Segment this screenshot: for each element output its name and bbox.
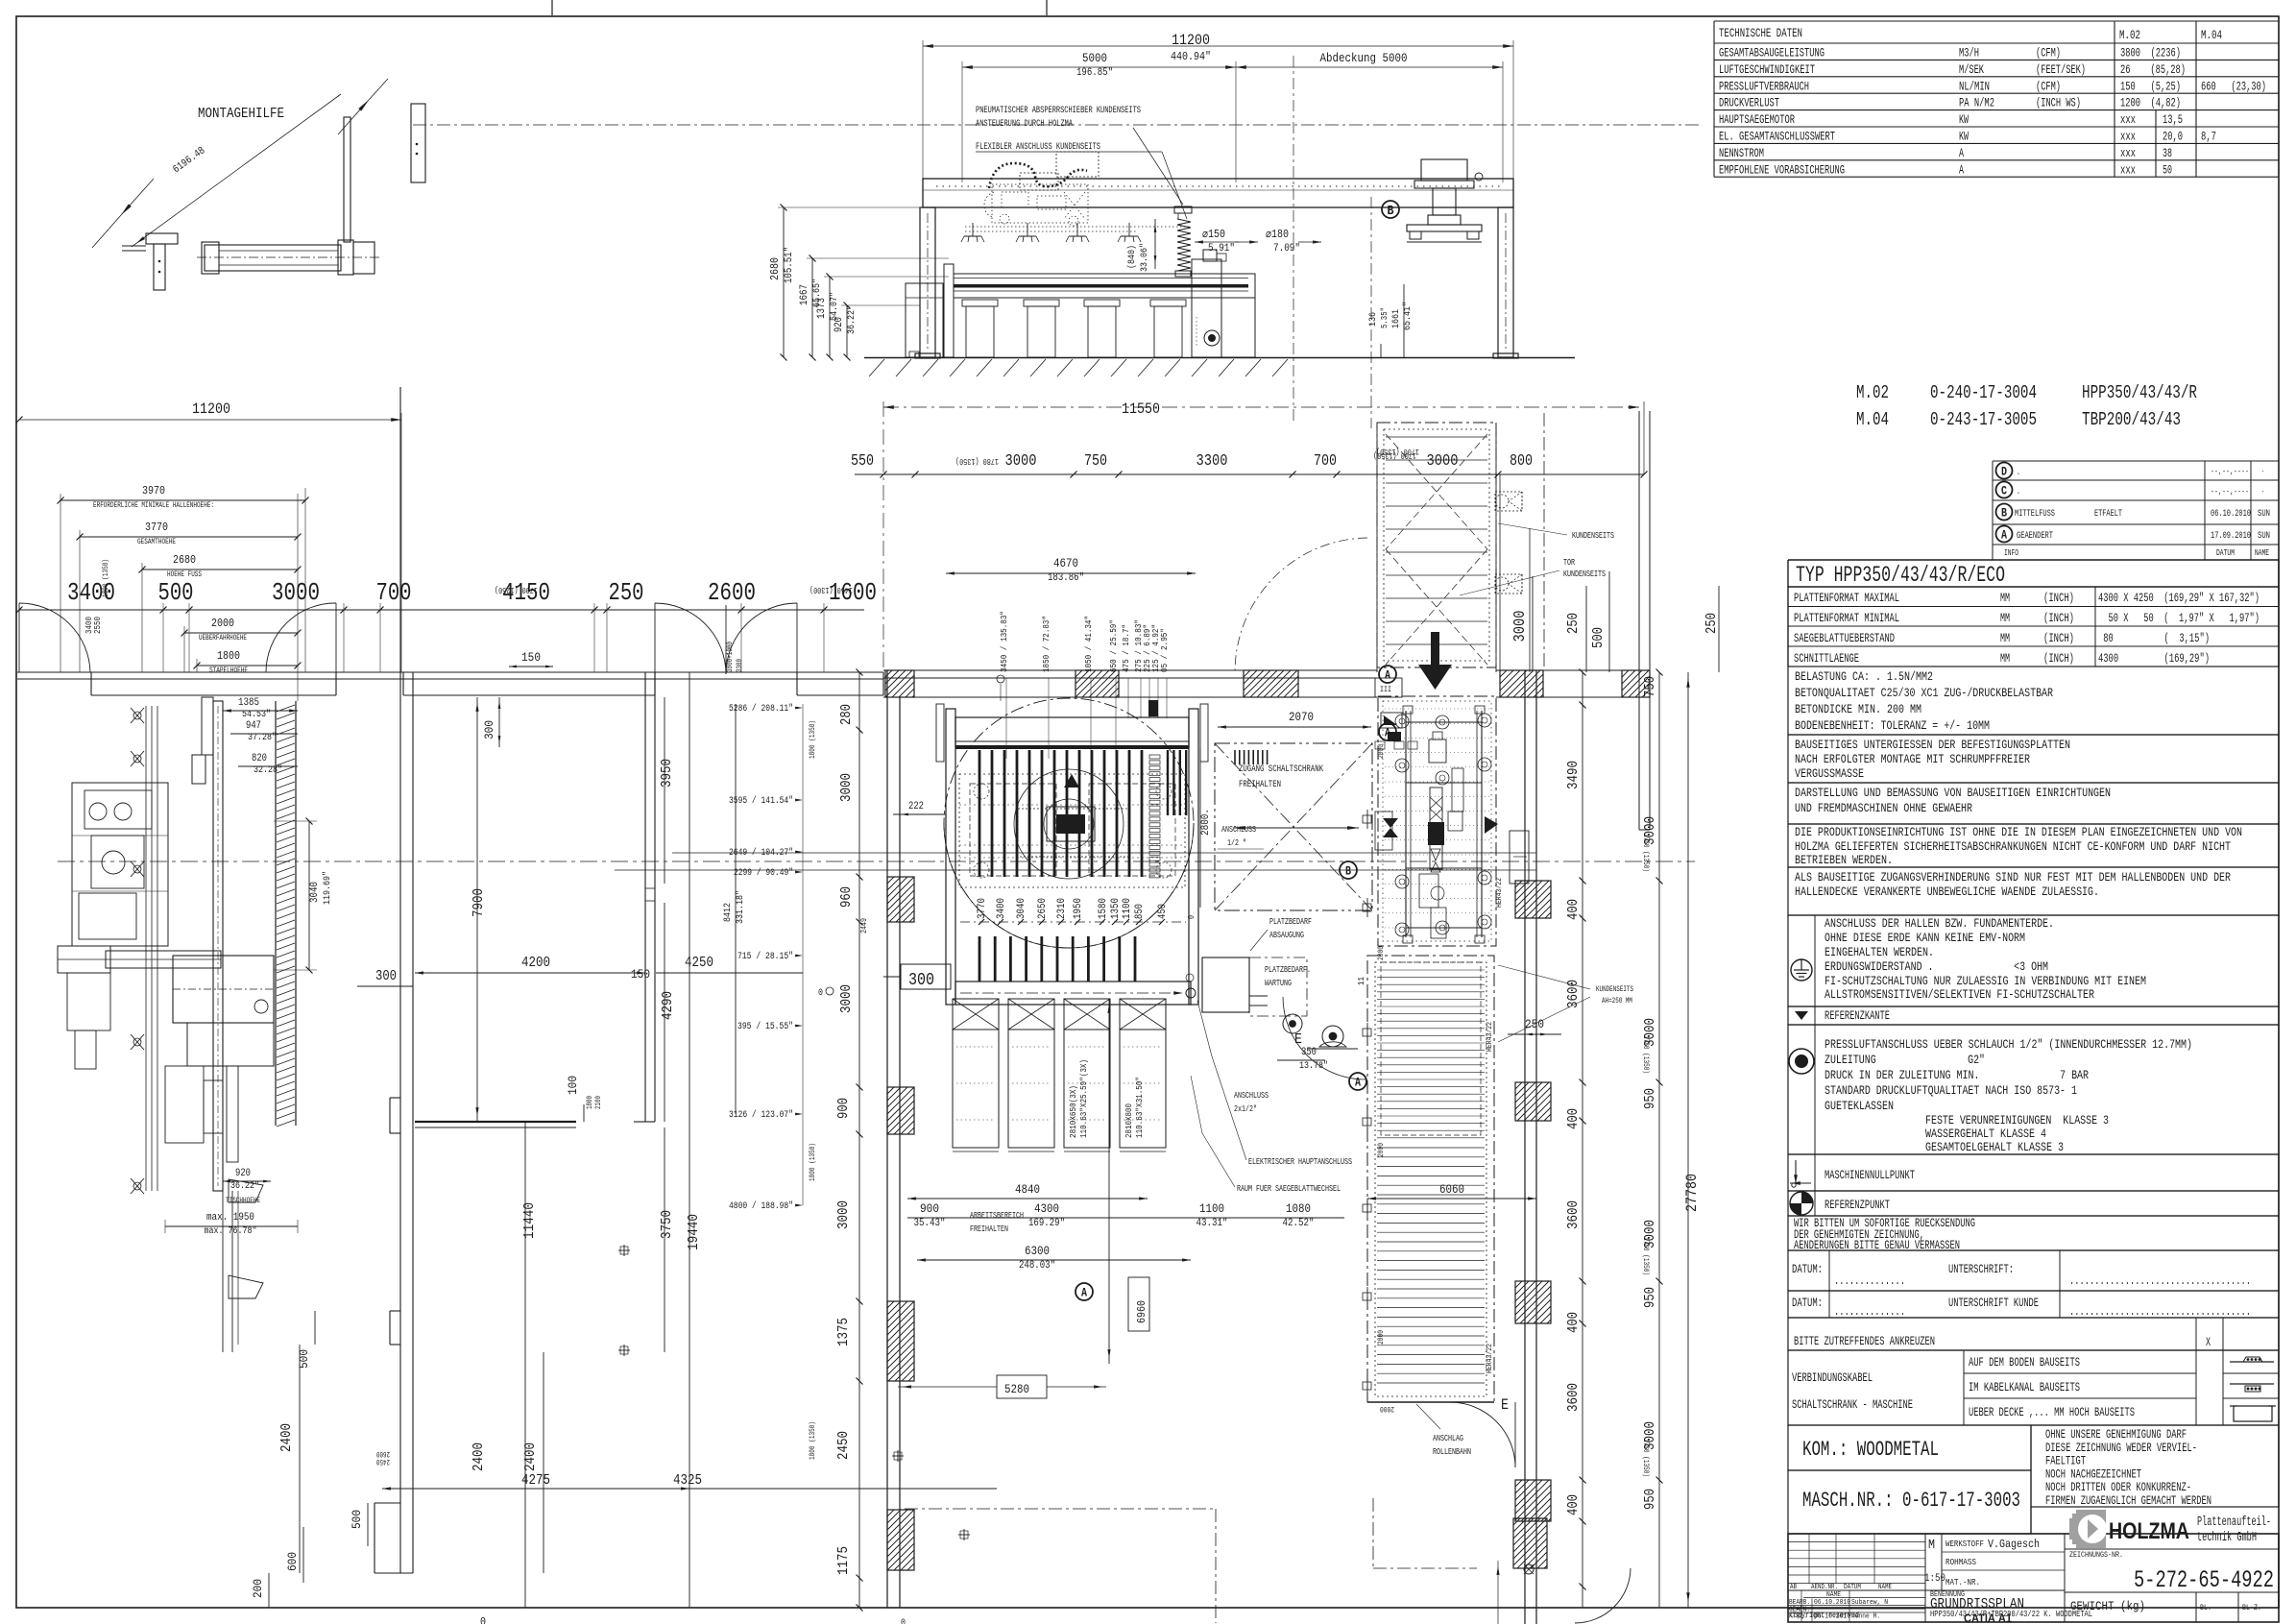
svg-text:2000: 2000: [1376, 946, 1386, 960]
svg-text:A: A: [1081, 1286, 1087, 1300]
svg-text:3770: 3770: [145, 521, 168, 534]
svg-text:VERGUSSMASSE: VERGUSSMASSE: [1795, 766, 1864, 781]
svg-text:--,--,----: --,--,----: [2211, 488, 2249, 497]
svg-text:DATUM:: DATUM:: [1792, 1263, 1823, 1276]
svg-text:AUF DEM BODEN BAUSEITS: AUF DEM BODEN BAUSEITS: [1969, 1356, 2080, 1369]
svg-text:4275: 4275: [521, 1472, 550, 1489]
svg-text:947: 947: [246, 720, 261, 732]
svg-text:MITTELFUSS: MITTELFUSS: [2015, 509, 2055, 520]
svg-text:4300 (169,29"): 4300 (169,29"): [2098, 652, 2210, 666]
svg-text:M.02: M.02: [1856, 382, 1889, 403]
svg-text:3000: 3000: [1427, 452, 1459, 471]
svg-text:ELEKTRISCHER HAUPTANSCHLUSS: ELEKTRISCHER HAUPTANSCHLUSS: [1248, 1156, 1352, 1167]
svg-text:50: 50: [2163, 163, 2172, 177]
svg-text:(INCH): (INCH): [2043, 652, 2074, 666]
svg-text:2000: 2000: [1376, 744, 1386, 759]
svg-text:xxx: xxx: [2120, 163, 2136, 177]
svg-text:MM: MM: [2000, 612, 2010, 625]
svg-text:MASCHINENNULLPUNKT: MASCHINENNULLPUNKT: [1825, 1169, 1915, 1182]
svg-text:20,0: 20,0: [2163, 131, 2183, 144]
svg-text:400: 400: [1565, 1312, 1582, 1333]
svg-text:KUNDENSEITS: KUNDENSEITS: [1563, 569, 1606, 579]
svg-text:500: 500: [350, 1510, 364, 1529]
svg-text:2000: 2000: [1376, 1143, 1386, 1157]
svg-text:0-240-17-3004: 0-240-17-3004: [1930, 382, 2037, 403]
svg-text:3040: 3040: [309, 882, 321, 903]
svg-text:(FEET/SEK): (FEET/SEK): [2036, 63, 2086, 77]
svg-text:E: E: [1501, 1396, 1509, 1414]
svg-text:REFERENZPUNKT: REFERENZPUNKT: [1825, 1199, 1890, 1212]
svg-text:NACH ERFOLGTER MONTAGE MIT SCH: NACH ERFOLGTER MONTAGE MIT SCHRUMPFFREIE…: [1795, 752, 2030, 766]
svg-text:2x1/2": 2x1/2": [1234, 1103, 1257, 1114]
svg-text:1700 (1350): 1700 (1350): [1376, 447, 1419, 456]
svg-text:50 X 50 ( 1,97" X 1,97"): 50 X 50 ( 1,97" X 1,97"): [2098, 612, 2260, 625]
svg-text:05 / 2.95": 05 / 2.95": [1159, 628, 1170, 672]
svg-text:ALLSTROMSENSITIVEN/SELEKTIVEN: ALLSTROMSENSITIVEN/SELEKTIVEN FI-SCHUTZS…: [1825, 987, 2094, 1002]
svg-text:PLATZBEDARF.: PLATZBEDARF.: [1265, 964, 1311, 975]
svg-text:38: 38: [2163, 147, 2172, 160]
svg-text:NAME: NAME: [2255, 548, 2269, 558]
svg-text:1780 (1350): 1780 (1350): [1641, 1237, 1650, 1275]
svg-text:UNTERSCHRIFT:: UNTERSCHRIFT:: [1948, 1263, 2014, 1276]
svg-text:550: 550: [851, 452, 874, 471]
svg-text:REFERENZKANTE: REFERENZKANTE: [1825, 1009, 1890, 1023]
svg-text:Copyright reserved: Copyright reserved: [1790, 1612, 1859, 1620]
svg-text:1100: 1100: [1199, 1201, 1224, 1216]
svg-text:SCHALTSCHRANK - MASCHINE: SCHALTSCHRANK - MASCHINE: [1792, 1398, 1913, 1412]
svg-text:3400: 3400: [996, 898, 1007, 919]
svg-text:GESAMTABSAUGELEISTUNG: GESAMTABSAUGELEISTUNG: [1719, 47, 1825, 61]
svg-text:119.69": 119.69": [322, 871, 333, 905]
svg-text:HAUPTSAEGEMOTOR: HAUPTSAEGEMOTOR: [1719, 113, 1795, 127]
svg-text:3800 (2236): 3800 (2236): [2120, 47, 2181, 61]
svg-text:4200: 4200: [521, 955, 550, 971]
svg-text:STAPELHOEHE: STAPELHOEHE: [209, 667, 248, 675]
svg-text:105.51": 105.51": [784, 247, 795, 283]
svg-text:UEBER DECKE ,... MM HOCH BAUSE: UEBER DECKE ,... MM HOCH BAUSEITS: [1969, 1406, 2135, 1419]
svg-text:PRESSLUFTANSCHLUSS UEBER SCHLA: PRESSLUFTANSCHLUSS UEBER SCHLAUCH 1/2" (…: [1825, 1037, 2192, 1052]
svg-text:KW: KW: [1959, 113, 1969, 127]
svg-text:3000: 3000: [838, 773, 855, 802]
svg-text:0: 0: [1187, 915, 1196, 919]
svg-text:2400: 2400: [471, 1442, 487, 1471]
svg-text:ANSCHLUSS DER HALLEN BZW. FUND: ANSCHLUSS DER HALLEN BZW. FUNDAMENTERDE.: [1825, 916, 2054, 931]
svg-text:35.43": 35.43": [914, 1218, 946, 1229]
svg-text:ABSAUGUNG: ABSAUGUNG: [1269, 930, 1304, 940]
svg-text:STANDARD DRUCKLUFTQUALITAET NA: STANDARD DRUCKLUFTQUALITAET NACH ISO 857…: [1825, 1083, 2077, 1098]
svg-text:6060: 6060: [1439, 1182, 1464, 1197]
svg-text:950: 950: [1642, 1287, 1658, 1308]
svg-text:ROLLENBAHN: ROLLENBAHN: [1433, 1446, 1471, 1457]
svg-text:FIRMEN ZUGAENGLICH GEMACHT WER: FIRMEN ZUGAENGLICH GEMACHT WERDEN: [2045, 1494, 2211, 1508]
svg-text:110.63"X25.59"(3X): 110.63"X25.59"(3X): [1078, 1059, 1089, 1138]
svg-text:11: 11: [1357, 977, 1366, 985]
svg-text:1800: 1800: [586, 1096, 594, 1109]
svg-text:KOM.: WOODMETAL: KOM.: WOODMETAL: [1802, 1438, 1939, 1462]
svg-text:ERFORDERLICHE MINIMALE HALLENH: ERFORDERLICHE MINIMALE HALLENHOEHE:: [93, 501, 214, 510]
svg-text:2449: 2449: [859, 918, 869, 933]
svg-text:2650: 2650: [1037, 898, 1049, 919]
svg-text:150: 150: [631, 967, 650, 982]
svg-text:HER43/22: HER43/22: [1485, 1344, 1494, 1373]
svg-text:BITTE ZUTREFFENDES ANKREUZEN: BITTE ZUTREFFENDES ANKREUZEN: [1794, 1335, 1935, 1348]
svg-text:3800+1000: 3800+1000: [726, 642, 735, 672]
svg-text:ANSCHLUSS: ANSCHLUSS: [1234, 1090, 1269, 1101]
svg-text:900: 900: [920, 1201, 939, 1216]
svg-text:4300: 4300: [1034, 1201, 1059, 1216]
svg-text:1667: 1667: [799, 284, 810, 305]
svg-text:400: 400: [1565, 1494, 1582, 1515]
svg-text:(CFM): (CFM): [2036, 47, 2061, 61]
svg-text:300: 300: [908, 971, 934, 990]
svg-text:HALLENDECKE VERANKERTE UNBEWEG: HALLENDECKE VERANKERTE UNBEWEGLICHE WAEN…: [1795, 885, 2099, 899]
svg-text:SAEGEBLATTUEBERSTAND: SAEGEBLATTUEBERSTAND: [1794, 632, 1895, 645]
svg-text:1661: 1661: [1391, 309, 1402, 328]
svg-text:X: X: [2206, 1336, 2211, 1349]
svg-text:-: -: [2261, 468, 2264, 476]
svg-text:1100: 1100: [1122, 898, 1133, 919]
svg-text:1850 / 72.83": 1850 / 72.83": [1041, 616, 1051, 672]
svg-text:2550: 2550: [93, 617, 103, 634]
svg-text:BODENEBENHEIT: TOLERANZ = +/-: BODENEBENHEIT: TOLERANZ = +/- 10MM: [1795, 718, 1990, 733]
svg-text:WASSERGEHALT KLASSE 4: WASSERGEHALT KLASSE 4: [1925, 1127, 2046, 1141]
svg-text:HOLZMA GELIEFERTEN SICHERHEITS: HOLZMA GELIEFERTEN SICHERHEITSABSCHRANKU…: [1795, 839, 2231, 854]
svg-text:500: 500: [297, 1349, 311, 1369]
svg-text:6300: 6300: [1025, 1244, 1050, 1258]
svg-text:SCHNITTLAENGE: SCHNITTLAENGE: [1794, 652, 1859, 666]
svg-text:850: 850: [1134, 904, 1146, 919]
svg-text:MAT.-NR.: MAT.-NR.: [1946, 1578, 1980, 1588]
svg-text:1800 (1350): 1800 (1350): [809, 1421, 817, 1460]
svg-text:2810X800: 2810X800: [1124, 1103, 1134, 1138]
svg-text:RAUM FUER SAEGEBLATTWECHSEL: RAUM FUER SAEGEBLATTWECHSEL: [1237, 1183, 1341, 1194]
svg-text:5280: 5280: [1004, 1382, 1029, 1396]
svg-text:DRUCKVERLUST: DRUCKVERLUST: [1719, 97, 1779, 110]
svg-text:700: 700: [376, 578, 412, 607]
svg-text:NOCH NACHGEZEICHNET: NOCH NACHGEZEICHNET: [2045, 1467, 2141, 1481]
svg-text:1050 / 41.34": 1050 / 41.34": [1083, 616, 1094, 672]
svg-text:UND FREMDMASCHINEN OHNE GEWAEH: UND FREMDMASCHINEN OHNE GEWAEHR: [1795, 801, 1972, 815]
svg-text:(CFM): (CFM): [2036, 80, 2061, 93]
svg-text:5.91": 5.91": [1208, 243, 1235, 255]
svg-text:1780 (1350): 1780 (1350): [955, 456, 999, 466]
svg-text:BELASTUNG CA: . 1.5N/MM2: BELASTUNG CA: . 1.5N/MM2: [1795, 669, 1933, 684]
svg-text:19440: 19440: [686, 1214, 702, 1250]
svg-text:1800: 1800: [217, 649, 240, 663]
svg-text:TBP200/43/43: TBP200/43/43: [2082, 409, 2181, 430]
svg-text:196.85": 196.85": [1076, 67, 1113, 79]
svg-text:MM: MM: [2000, 592, 2010, 605]
svg-text:ANSTEUERUNG DURCH HOLZMA: ANSTEUERUNG DURCH HOLZMA: [976, 119, 1073, 130]
svg-text:500: 500: [1590, 627, 1607, 648]
svg-text:3770: 3770: [977, 898, 988, 919]
svg-text:3600: 3600: [1565, 980, 1582, 1008]
svg-text:HOLZMA: HOLZMA: [2109, 1518, 2189, 1544]
svg-text:MM: MM: [2000, 632, 2010, 645]
svg-text:xxx: xxx: [2120, 131, 2136, 144]
svg-text:4840: 4840: [1015, 1182, 1040, 1197]
svg-text:5000: 5000: [1082, 51, 1107, 65]
svg-text:250: 250: [609, 578, 644, 607]
svg-text:2000: 2000: [1380, 1404, 1394, 1414]
svg-text:17.09.2010: 17.09.2010: [2211, 531, 2251, 542]
svg-text:xxx: xxx: [2120, 113, 2136, 127]
svg-text:4670: 4670: [1053, 556, 1078, 570]
svg-text:VERBINDUNGSKABEL: VERBINDUNGSKABEL: [1792, 1371, 1873, 1385]
svg-text:OHNE UNSERE GENEHMIGUNG DARF: OHNE UNSERE GENEHMIGUNG DARF: [2045, 1428, 2187, 1442]
svg-text:300: 300: [482, 720, 496, 739]
svg-text:280: 280: [838, 704, 855, 725]
svg-text:600: 600: [285, 1552, 300, 1571]
svg-text:B: B: [1388, 204, 1394, 219]
svg-text:DRUCK IN DER ZULEITUNG MIN.: DRUCK IN DER ZULEITUNG MIN. 7 BAR: [1825, 1068, 2089, 1082]
svg-text:3450 / 135.83": 3450 / 135.83": [999, 611, 1009, 672]
svg-text:500: 500: [158, 578, 194, 607]
svg-text:2310: 2310: [1056, 898, 1068, 919]
svg-text:(INCH): (INCH): [2043, 592, 2074, 605]
svg-text:660 (23,30): 660 (23,30): [2201, 80, 2266, 93]
svg-text:.: .: [2017, 468, 2020, 478]
svg-text:EINGEHALTEN WERDEN.: EINGEHALTEN WERDEN.: [1825, 945, 1934, 959]
svg-text:5286 / 208.11": 5286 / 208.11": [729, 703, 793, 715]
svg-text:TYP HPP350/43/43/R/ECO: TYP HPP350/43/43/R/ECO: [1796, 563, 2005, 588]
svg-text:4325: 4325: [673, 1472, 702, 1489]
svg-text:FESTE VERUNREINIGUNGEN KLASSE: FESTE VERUNREINIGUNGEN KLASSE 3: [1925, 1113, 2109, 1127]
svg-text:2299 / 90.49": 2299 / 90.49": [734, 867, 793, 879]
svg-text:GESAMTHOEHE: GESAMTHOEHE: [137, 538, 176, 546]
svg-text:PRESSLUFTVERBRAUCH: PRESSLUFTVERBRAUCH: [1719, 80, 1809, 93]
svg-text:0: 0: [901, 1618, 906, 1624]
svg-text:UNTERSCHRIFT KUNDE: UNTERSCHRIFT KUNDE: [1948, 1297, 2039, 1310]
svg-text:1/2 ": 1/2 ": [1227, 837, 1246, 848]
svg-text:7900: 7900: [471, 888, 487, 917]
svg-text:820: 820: [252, 753, 267, 764]
svg-text:PLATTENFORMAT MAXIMAL: PLATTENFORMAT MAXIMAL: [1794, 592, 1899, 605]
svg-text:M.02: M.02: [2119, 28, 2140, 42]
svg-text:..............: ..............: [1834, 1305, 1905, 1319]
svg-text:27780: 27780: [1683, 1174, 1701, 1212]
svg-text:950: 950: [1642, 1088, 1658, 1109]
svg-text:7.09": 7.09": [1273, 243, 1300, 255]
svg-text:8,7: 8,7: [2201, 131, 2216, 144]
svg-text:HPP350/43/43/R: HPP350/43/43/R: [2082, 382, 2197, 403]
svg-text:2070: 2070: [1289, 710, 1314, 724]
svg-text:PLATZBEDARF: PLATZBEDARF: [1269, 916, 1312, 927]
svg-text:GEAENDERT: GEAENDERT: [2017, 531, 2053, 542]
svg-text:BL.: BL.: [2200, 1604, 2211, 1612]
svg-text:ZULEITUNG G2": ZULEITUNG G2": [1825, 1053, 1985, 1067]
svg-text:(840): (840): [1126, 245, 1138, 269]
svg-text:2810X650(3X): 2810X650(3X): [1068, 1085, 1078, 1138]
svg-text:4800 / 188.98": 4800 / 188.98": [729, 1200, 793, 1212]
svg-text:42.52": 42.52": [1283, 1218, 1315, 1229]
svg-text:4250: 4250: [685, 955, 713, 971]
svg-text:HER43/22: HER43/22: [1494, 878, 1504, 908]
svg-text:WERKSTOFF: WERKSTOFF: [1946, 1539, 1984, 1549]
svg-text:KW: KW: [1959, 131, 1969, 144]
svg-text:UEBERFAHRHOEHE: UEBERFAHRHOEHE: [199, 634, 247, 642]
svg-text:2800.: 2800.: [1200, 809, 1212, 836]
svg-text:1080: 1080: [1286, 1201, 1311, 1216]
svg-text:SUN: SUN: [2258, 509, 2270, 520]
svg-text:1:50: 1:50: [1924, 1573, 1946, 1585]
svg-text:700: 700: [1314, 452, 1337, 471]
svg-text:1175: 1175: [835, 1546, 852, 1575]
svg-text:MASCH.NR.: 0-617-17-3003: MASCH.NR.: 0-617-17-3003: [1802, 1489, 2020, 1513]
svg-text:3000: 3000: [835, 1200, 852, 1229]
svg-text:183.86": 183.86": [1048, 572, 1084, 584]
svg-text:6960: 6960: [1135, 1300, 1148, 1323]
svg-text:(INCH): (INCH): [2043, 612, 2074, 625]
svg-text:ROHMASS: ROHMASS: [1946, 1558, 1976, 1567]
svg-text:1200 (4,82): 1200 (4,82): [2120, 97, 2181, 110]
svg-text:A: A: [1355, 1076, 1361, 1090]
svg-text:KUNDENSEITS: KUNDENSEITS: [1572, 530, 1614, 541]
svg-text:M.04: M.04: [1856, 409, 1889, 430]
svg-text:11200: 11200: [192, 400, 230, 418]
svg-text:FREIHALTEN: FREIHALTEN: [970, 1224, 1008, 1234]
svg-text:DIESE ZEICHNUNG WEDER VERVIEL-: DIESE ZEICHNUNG WEDER VERVIEL-: [2045, 1442, 2197, 1455]
svg-text:ARBEITSBEREICH: ARBEITSBEREICH: [970, 1210, 1024, 1221]
svg-text:D: D: [2001, 465, 2007, 479]
svg-text:8412: 8412: [723, 903, 734, 922]
svg-text:NOCH DRITTEN ODER KONKURRENZ-: NOCH DRITTEN ODER KONKURRENZ-: [2045, 1481, 2191, 1494]
svg-text:100: 100: [566, 1076, 580, 1095]
svg-text:26 (85,28): 26 (85,28): [2120, 63, 2186, 77]
svg-text:43.31": 43.31": [1196, 1218, 1228, 1229]
svg-text:ANSCHLAG: ANSCHLAG: [1433, 1433, 1463, 1443]
svg-text:3000: 3000: [1005, 452, 1037, 471]
svg-text:--,--,----: --,--,----: [2211, 468, 2249, 476]
svg-text:LUFTGESCHWINDIGKEIT: LUFTGESCHWINDIGKEIT: [1719, 63, 1815, 77]
svg-text:80 ( 3,15"): 80 ( 3,15"): [2098, 632, 2210, 645]
svg-text:.: .: [2017, 487, 2020, 497]
svg-text:750: 750: [1642, 676, 1658, 697]
svg-text:1580: 1580: [1098, 898, 1109, 919]
svg-text:248.03": 248.03": [1019, 1260, 1055, 1272]
svg-text:FAELTIGT: FAELTIGT: [2045, 1455, 2086, 1468]
svg-text:3000: 3000: [272, 578, 320, 607]
svg-text:A: A: [1385, 668, 1390, 683]
svg-text:920: 920: [235, 1168, 251, 1179]
svg-text:MONTAGEHILFE: MONTAGEHILFE: [198, 106, 284, 122]
svg-text:400: 400: [1565, 1108, 1582, 1129]
svg-text:BL-Z.: BL-Z.: [2242, 1604, 2261, 1612]
svg-text:250: 250: [1704, 613, 1720, 634]
svg-text:(INCH): (INCH): [2043, 632, 2074, 645]
svg-text:2400: 2400: [278, 1423, 295, 1452]
svg-text:FREIHALTEN: FREIHALTEN: [1239, 779, 1281, 790]
svg-text:B: B: [2001, 506, 2007, 521]
svg-text:1780 (1350): 1780 (1350): [1641, 1439, 1650, 1477]
svg-text:Abdeckung 5000: Abdeckung 5000: [1320, 51, 1408, 65]
svg-text:3595 / 141.54": 3595 / 141.54": [729, 795, 793, 807]
svg-text:1800 (1350): 1800 (1350): [809, 1143, 817, 1181]
svg-text:⌀150: ⌀150: [1202, 228, 1225, 241]
svg-text:GESAMTOELGEHALT KLASSE 3: GESAMTOELGEHALT KLASSE 3: [1925, 1140, 2064, 1154]
svg-text:400: 400: [1565, 899, 1582, 920]
svg-text:DATUM:: DATUM:: [1792, 1297, 1823, 1310]
svg-text:3950: 3950: [659, 759, 675, 788]
svg-text:110.63"X31.50": 110.63"X31.50": [1134, 1077, 1145, 1138]
svg-text:650 / 25.59": 650 / 25.59": [1108, 619, 1119, 672]
svg-text:331.18": 331.18": [735, 890, 746, 924]
svg-text:3600: 3600: [1565, 1200, 1582, 1229]
svg-text:2680: 2680: [173, 553, 196, 567]
svg-text:150: 150: [521, 650, 541, 665]
svg-text:ETFAELT: ETFAELT: [2094, 509, 2122, 520]
svg-text:BETRIEBEN WERDEN.: BETRIEBEN WERDEN.: [1795, 853, 1893, 867]
svg-text:0: 0: [480, 1615, 486, 1624]
svg-text:0-243-17-3005: 0-243-17-3005: [1930, 409, 2037, 430]
svg-text:BETONQUALITAET C25/30 XC1 ZUG-: BETONQUALITAET C25/30 XC1 ZUG-/DRUCKBELA…: [1795, 686, 2053, 700]
svg-text:(INCH WS): (INCH WS): [2036, 97, 2081, 110]
svg-text:36.22": 36.22": [846, 305, 858, 334]
svg-text:1373: 1373: [816, 298, 828, 319]
svg-text:1950: 1950: [1073, 898, 1084, 919]
svg-text:2600: 2600: [708, 578, 756, 607]
svg-text:ERDUNGSWIDERSTAND .: ERDUNGSWIDERSTAND . <3 OHM: [1825, 959, 2048, 974]
svg-text:13,5: 13,5: [2163, 113, 2183, 127]
svg-text:475 / 18.7": 475 / 18.7": [1121, 624, 1131, 672]
svg-text:169.29": 169.29": [1028, 1218, 1065, 1229]
svg-text:..............................: ....................................: [2069, 1274, 2251, 1288]
svg-text:PNEUMATISCHER ABSPERRSCHIEBER: PNEUMATISCHER ABSPERRSCHIEBER KUNDENSEIT…: [976, 106, 1141, 116]
svg-text:150 (5,25): 150 (5,25): [2120, 80, 2181, 93]
svg-text:920: 920: [834, 317, 845, 332]
svg-text:3300: 3300: [1196, 452, 1228, 471]
svg-text:2100: 2100: [594, 1096, 603, 1109]
svg-text:2000: 2000: [1376, 1330, 1386, 1345]
svg-text:GUETEKLASSEN: GUETEKLASSEN: [1825, 1099, 1894, 1113]
svg-text:NENNSTROM: NENNSTROM: [1719, 147, 1764, 160]
svg-text:0: 0: [818, 988, 823, 999]
svg-text:ALS BAUSEITIGE ZUGANGSVERHINDE: ALS BAUSEITIGE ZUGANGSVERHINDERUNG SIND …: [1795, 870, 2231, 885]
svg-text:5.35": 5.35": [1380, 307, 1390, 328]
svg-text:PLATTENFORMAT MINIMAL: PLATTENFORMAT MINIMAL: [1794, 612, 1899, 625]
svg-text:TOR: TOR: [1563, 557, 1575, 568]
svg-text:3600: 3600: [1565, 1383, 1582, 1412]
svg-text:ZEICHNUNGS-NR.: ZEICHNUNGS-NR.: [2069, 1551, 2123, 1560]
svg-text:11440: 11440: [521, 1202, 538, 1239]
svg-text:TECHNISCHE DATEN: TECHNISCHE DATEN: [1719, 26, 1802, 40]
svg-text:13.78": 13.78": [1299, 1060, 1328, 1072]
svg-text:5-272-65-4922: 5-272-65-4922: [2134, 1566, 2274, 1594]
svg-text:715 / 28.15": 715 / 28.15": [737, 951, 793, 962]
svg-text:A: A: [2001, 528, 2007, 543]
svg-text:3000: 3000: [1511, 611, 1530, 642]
svg-text:WARTUNG: WARTUNG: [1265, 978, 1292, 988]
svg-text:960: 960: [838, 886, 855, 908]
svg-text:III: III: [1380, 686, 1391, 694]
svg-text:3126 / 123.07": 3126 / 123.07": [729, 1109, 793, 1121]
svg-text:2000: 2000: [211, 617, 234, 630]
svg-text:HPP350/43/43/R+TBP200/43/22 K.: HPP350/43/43/R+TBP200/43/22 K. WOODMETAL: [1930, 1610, 2092, 1619]
svg-text:M3/H: M3/H: [1959, 47, 1979, 61]
svg-text:M: M: [1928, 1538, 1935, 1553]
svg-text:DARSTELLUNG UND BEMASSUNG VON: DARSTELLUNG UND BEMASSUNG VON BAUSEITIGE…: [1795, 786, 2111, 800]
svg-text:750: 750: [1084, 452, 1107, 471]
svg-text:B: B: [1345, 864, 1351, 879]
svg-text:3490: 3490: [1565, 761, 1582, 789]
svg-text:250: 250: [1565, 613, 1582, 634]
svg-text:ZUGANG SCHALTSCHRANK: ZUGANG SCHALTSCHRANK: [1239, 764, 1323, 775]
svg-text:3300: 3300: [736, 659, 744, 672]
svg-text:450: 450: [1157, 904, 1169, 919]
svg-text:..............: ..............: [1834, 1274, 1905, 1288]
svg-text:IM KABELKANAL BAUSEITS: IM KABELKANAL BAUSEITS: [1969, 1381, 2080, 1394]
svg-text:300: 300: [375, 968, 397, 984]
